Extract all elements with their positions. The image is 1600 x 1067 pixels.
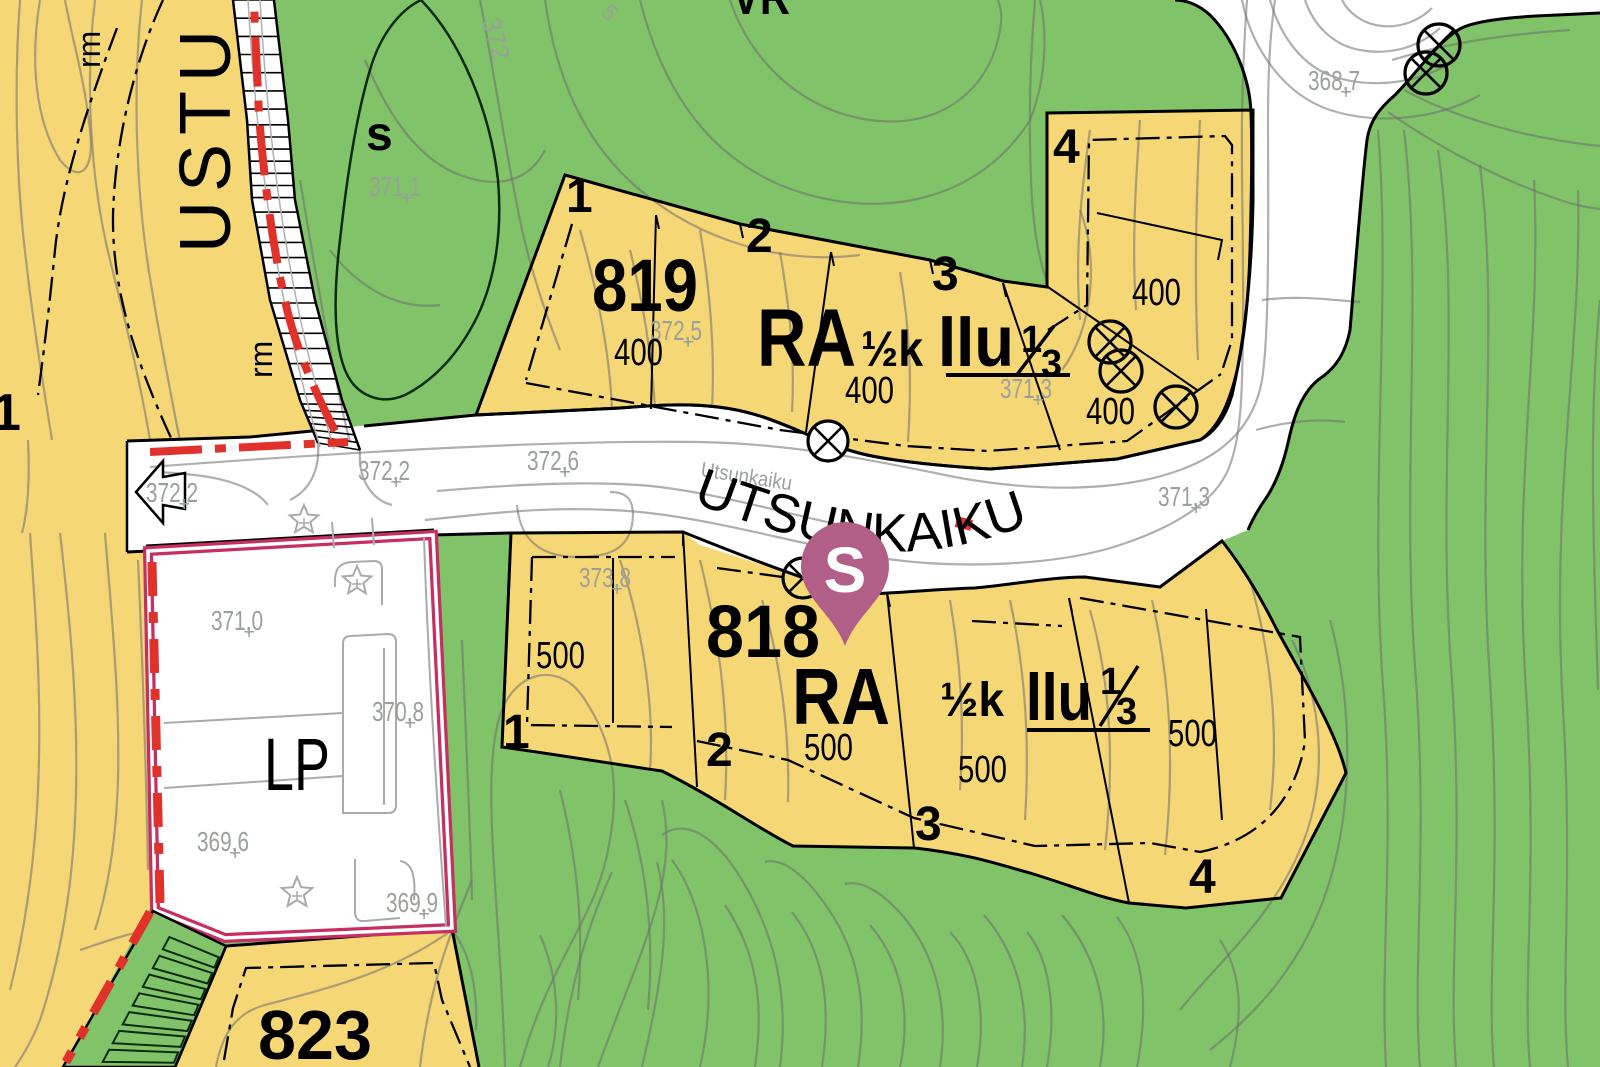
- svg-text:+: +: [404, 713, 416, 735]
- svg-text:1: 1: [566, 170, 593, 223]
- svg-text:370,8: 370,8: [372, 696, 424, 727]
- svg-text:S: S: [824, 534, 867, 606]
- svg-text:rm: rm: [243, 341, 279, 378]
- svg-text:500: 500: [958, 749, 1007, 791]
- svg-text:368,7: 368,7: [1308, 65, 1360, 96]
- svg-text:500: 500: [804, 727, 853, 769]
- svg-text:3: 3: [932, 248, 959, 301]
- svg-text:1: 1: [0, 384, 21, 442]
- svg-text:371,1: 371,1: [369, 171, 421, 202]
- svg-text:+: +: [682, 332, 694, 354]
- svg-text:1: 1: [503, 706, 530, 759]
- svg-text:823: 823: [258, 996, 372, 1067]
- svg-text:rm: rm: [71, 31, 107, 68]
- svg-text:371,3: 371,3: [1158, 481, 1210, 512]
- svg-text:½k: ½k: [861, 321, 923, 377]
- svg-text:400: 400: [1132, 272, 1181, 314]
- svg-text:372,2: 372,2: [146, 477, 198, 508]
- svg-text:3: 3: [1116, 691, 1137, 733]
- svg-text:½k: ½k: [940, 674, 1004, 727]
- svg-text:+: +: [1340, 82, 1352, 104]
- svg-text:371,0: 371,0: [211, 605, 263, 636]
- svg-text:373,8: 373,8: [579, 562, 631, 593]
- svg-text:+: +: [611, 579, 623, 601]
- svg-text:+: +: [1032, 390, 1044, 412]
- svg-text:2: 2: [746, 210, 773, 263]
- svg-text:LP: LP: [264, 723, 330, 806]
- svg-text:372,6: 372,6: [527, 445, 579, 476]
- svg-text:3: 3: [915, 798, 942, 851]
- svg-text:400: 400: [614, 332, 663, 374]
- svg-text:+: +: [243, 622, 255, 644]
- svg-text:+: +: [418, 904, 430, 926]
- svg-text:819: 819: [592, 244, 698, 327]
- svg-text:2: 2: [706, 724, 733, 777]
- svg-text:400: 400: [845, 370, 894, 412]
- svg-text:500: 500: [536, 635, 585, 677]
- svg-text:+: +: [390, 472, 402, 494]
- svg-text:RA: RA: [757, 293, 856, 384]
- svg-text:369,6: 369,6: [197, 826, 249, 857]
- svg-text:4: 4: [1053, 121, 1080, 174]
- svg-text:s: s: [366, 108, 393, 161]
- svg-text:+: +: [229, 843, 241, 865]
- svg-text:372,2: 372,2: [358, 455, 410, 486]
- svg-text:+: +: [178, 494, 190, 516]
- svg-text:4: 4: [1189, 851, 1216, 904]
- svg-text:369,9: 369,9: [386, 887, 438, 918]
- svg-text:IIu: IIu: [938, 302, 1014, 382]
- svg-text:+: +: [559, 462, 571, 484]
- svg-text:USTU: USTU: [166, 21, 246, 253]
- svg-text:IIu: IIu: [1026, 657, 1092, 735]
- svg-text:400: 400: [1086, 391, 1135, 433]
- svg-text:3: 3: [1041, 343, 1062, 385]
- svg-text:VR: VR: [732, 0, 790, 25]
- svg-text:500: 500: [1168, 713, 1217, 755]
- svg-text:+: +: [1190, 498, 1202, 520]
- svg-text:+: +: [401, 188, 413, 210]
